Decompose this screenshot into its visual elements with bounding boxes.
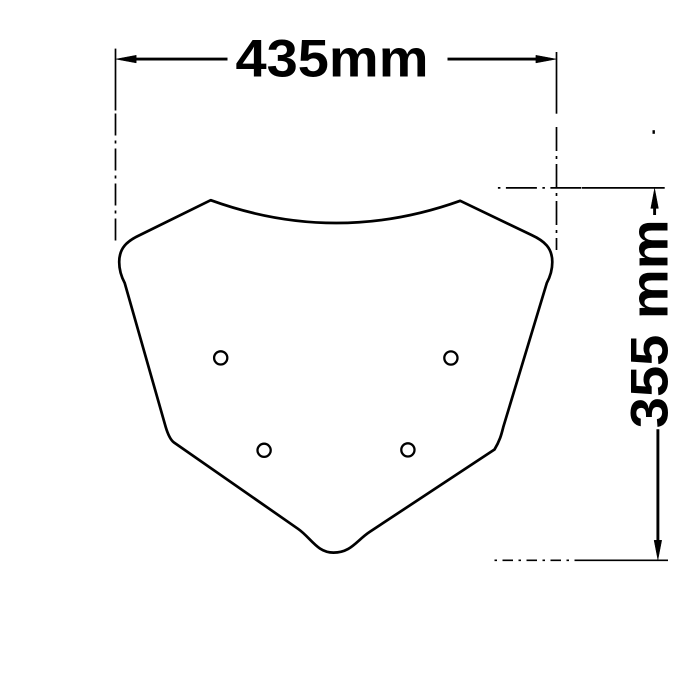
svg-text:435mm: 435mm bbox=[236, 29, 429, 88]
svg-text:355 mm: 355 mm bbox=[621, 219, 680, 428]
